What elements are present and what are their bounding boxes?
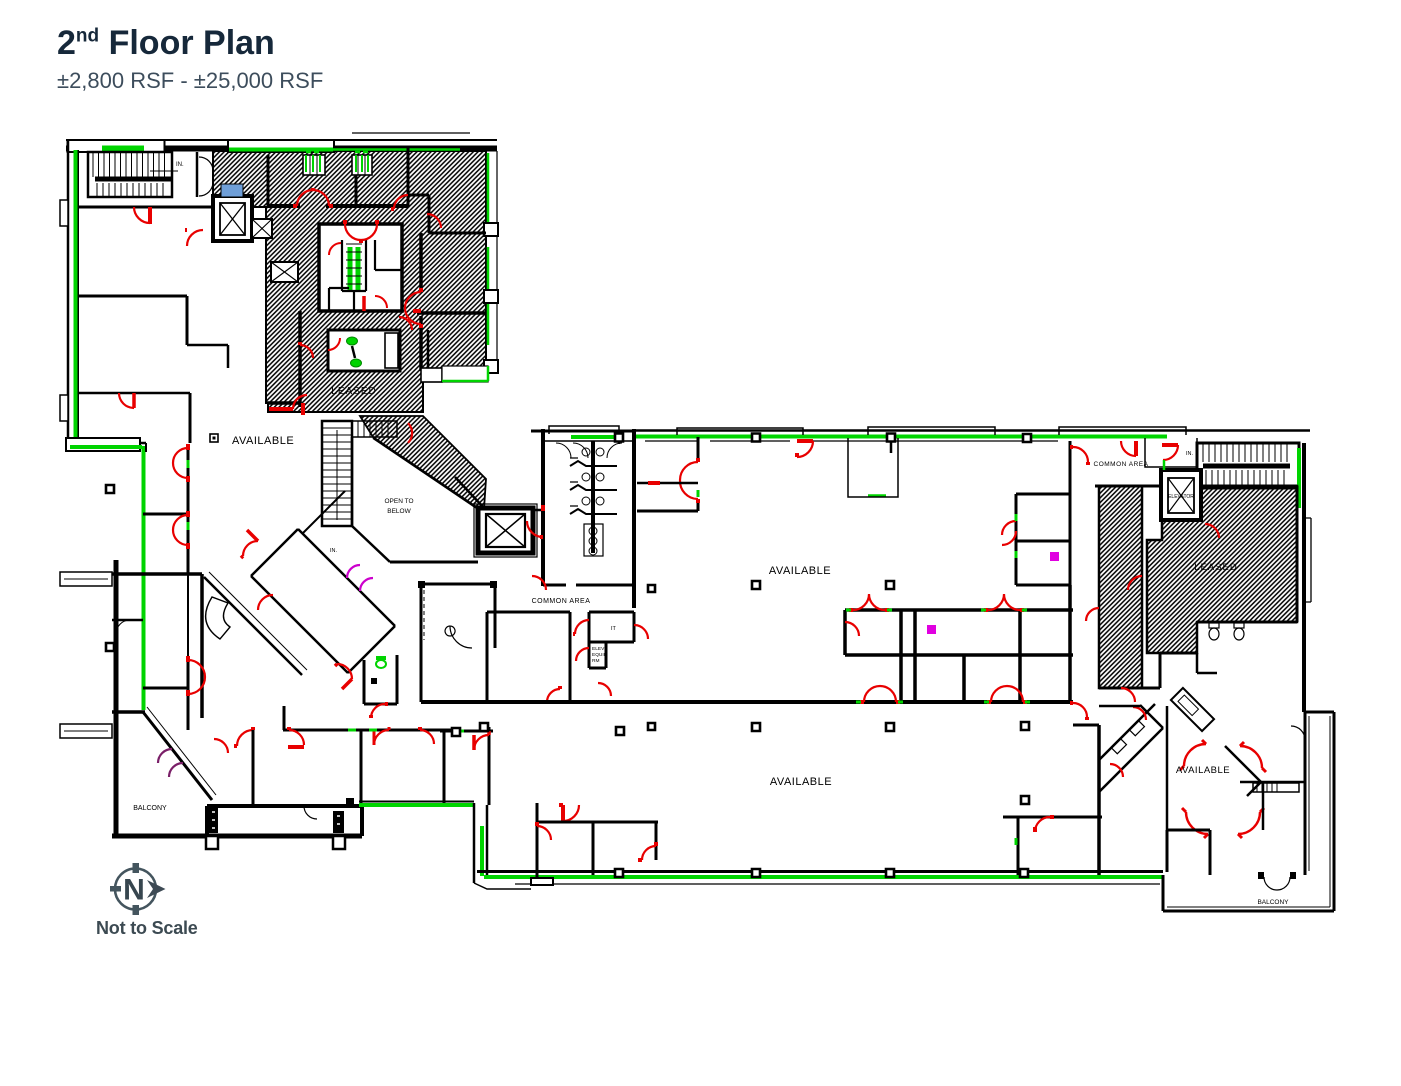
svg-text:LEASED: LEASED: [331, 386, 376, 397]
svg-text:AVAILABLE: AVAILABLE: [770, 776, 832, 788]
svg-text:BALCONY: BALCONY: [1257, 899, 1289, 906]
svg-text:N: N: [123, 874, 145, 907]
svg-text:ELEV: ELEV: [592, 646, 605, 652]
svg-text:OPEN TO: OPEN TO: [384, 498, 413, 505]
svg-text:COMMON AREA: COMMON AREA: [532, 598, 591, 605]
svg-text:BALCONY: BALCONY: [133, 805, 167, 812]
svg-text:RM: RM: [592, 658, 599, 664]
svg-text:ELEVATOR: ELEVATOR: [1168, 494, 1194, 500]
svg-text:IN.: IN.: [1186, 451, 1194, 457]
svg-text:BELOW: BELOW: [387, 508, 411, 515]
svg-text:LEASED: LEASED: [1194, 562, 1238, 573]
svg-text:AVAILABLE: AVAILABLE: [1176, 765, 1230, 776]
svg-text:EQUIP: EQUIP: [592, 652, 607, 658]
svg-text:AVAILABLE: AVAILABLE: [232, 435, 294, 447]
svg-text:IN.: IN.: [176, 162, 184, 168]
svg-text:IT: IT: [611, 626, 617, 632]
svg-text:Not to Scale: Not to Scale: [96, 918, 198, 938]
svg-text:COMMON AREA: COMMON AREA: [1094, 461, 1149, 468]
svg-text:IN.: IN.: [330, 548, 338, 554]
svg-text:AVAILABLE: AVAILABLE: [769, 565, 831, 577]
